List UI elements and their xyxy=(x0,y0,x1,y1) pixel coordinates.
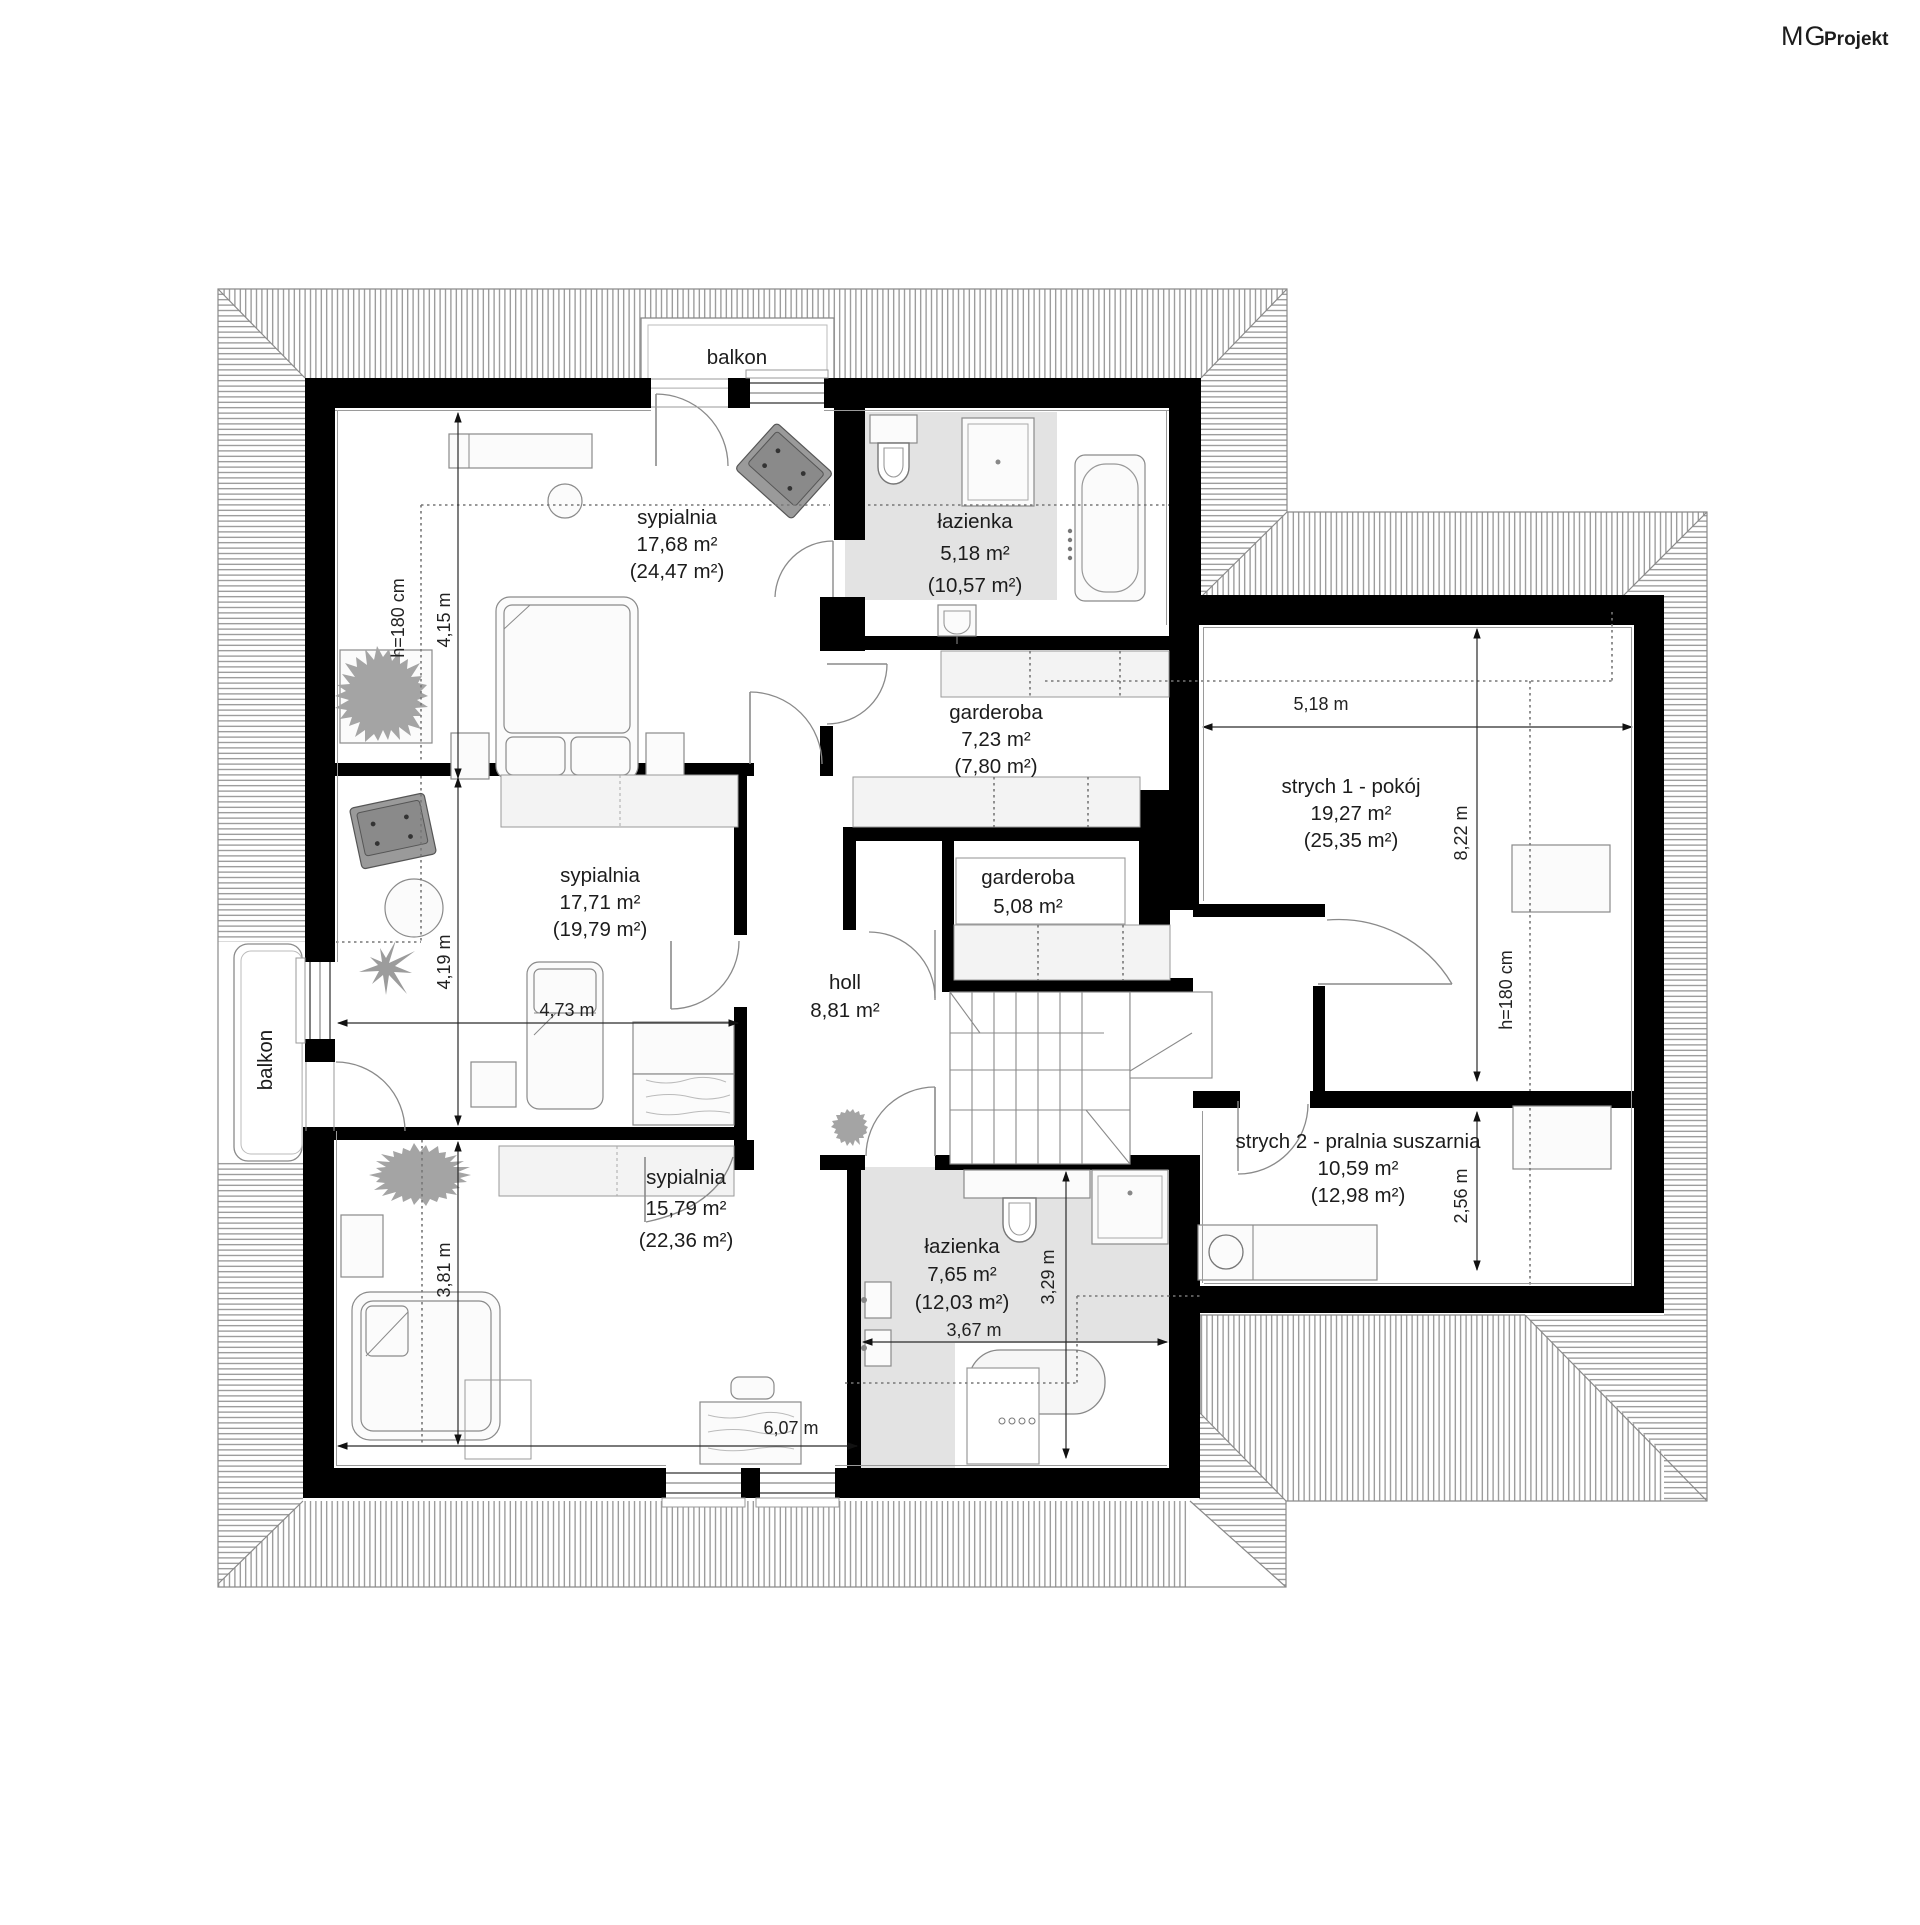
svg-text:Projekt: Projekt xyxy=(1824,29,1889,50)
svg-text:4,15 m: 4,15 m xyxy=(434,592,454,647)
svg-text:balkon: balkon xyxy=(254,1030,277,1090)
svg-text:garderoba: garderoba xyxy=(981,866,1075,889)
svg-text:h=180 cm: h=180 cm xyxy=(1496,950,1516,1030)
svg-text:7,23 m²: 7,23 m² xyxy=(961,728,1031,751)
svg-text:h=180 cm: h=180 cm xyxy=(388,578,408,658)
svg-text:balkon: balkon xyxy=(707,346,767,369)
svg-text:3,29 m: 3,29 m xyxy=(1038,1249,1058,1304)
svg-text:8,22 m: 8,22 m xyxy=(1451,805,1471,860)
svg-text:(10,57 m²): (10,57 m²) xyxy=(928,574,1023,597)
svg-text:(24,47 m²): (24,47 m²) xyxy=(630,560,725,583)
svg-text:(25,35 m²): (25,35 m²) xyxy=(1304,829,1399,852)
svg-text:2,56 m: 2,56 m xyxy=(1451,1168,1471,1223)
svg-text:(12,03 m²): (12,03 m²) xyxy=(915,1291,1010,1314)
svg-text:8,81 m²: 8,81 m² xyxy=(810,999,880,1022)
svg-text:garderoba: garderoba xyxy=(949,701,1043,724)
svg-text:15,79 m²: 15,79 m² xyxy=(646,1197,727,1220)
svg-text:5,08 m²: 5,08 m² xyxy=(993,895,1063,918)
svg-text:(7,80 m²): (7,80 m²) xyxy=(954,755,1037,778)
svg-text:4,19 m: 4,19 m xyxy=(434,934,454,989)
svg-text:łazienka: łazienka xyxy=(924,1235,1000,1258)
svg-text:5,18 m: 5,18 m xyxy=(1293,694,1348,714)
svg-text:strych 1 - pokój: strych 1 - pokój xyxy=(1282,775,1421,798)
svg-text:holl: holl xyxy=(829,971,861,994)
svg-text:7,65 m²: 7,65 m² xyxy=(927,1263,997,1286)
svg-text:sypialnia: sypialnia xyxy=(637,506,717,529)
svg-text:MG: MG xyxy=(1781,21,1827,51)
svg-text:sypialnia: sypialnia xyxy=(646,1166,726,1189)
svg-text:(12,98 m²): (12,98 m²) xyxy=(1311,1184,1406,1207)
svg-text:10,59 m²: 10,59 m² xyxy=(1318,1157,1399,1180)
svg-text:3,67 m: 3,67 m xyxy=(946,1320,1001,1340)
svg-text:17,71 m²: 17,71 m² xyxy=(560,891,641,914)
svg-text:4,73 m: 4,73 m xyxy=(539,1000,594,1020)
svg-text:19,27 m²: 19,27 m² xyxy=(1311,802,1392,825)
svg-text:6,07 m: 6,07 m xyxy=(763,1418,818,1438)
svg-text:(19,79 m²): (19,79 m²) xyxy=(553,918,648,941)
svg-text:sypialnia: sypialnia xyxy=(560,864,640,887)
svg-text:5,18 m²: 5,18 m² xyxy=(940,542,1010,565)
svg-text:łazienka: łazienka xyxy=(937,510,1013,533)
svg-text:(22,36 m²): (22,36 m²) xyxy=(639,1229,734,1252)
svg-text:strych 2 - pralnia suszarnia: strych 2 - pralnia suszarnia xyxy=(1236,1130,1482,1153)
svg-text:3,81 m: 3,81 m xyxy=(434,1242,454,1297)
svg-text:17,68 m²: 17,68 m² xyxy=(637,533,718,556)
